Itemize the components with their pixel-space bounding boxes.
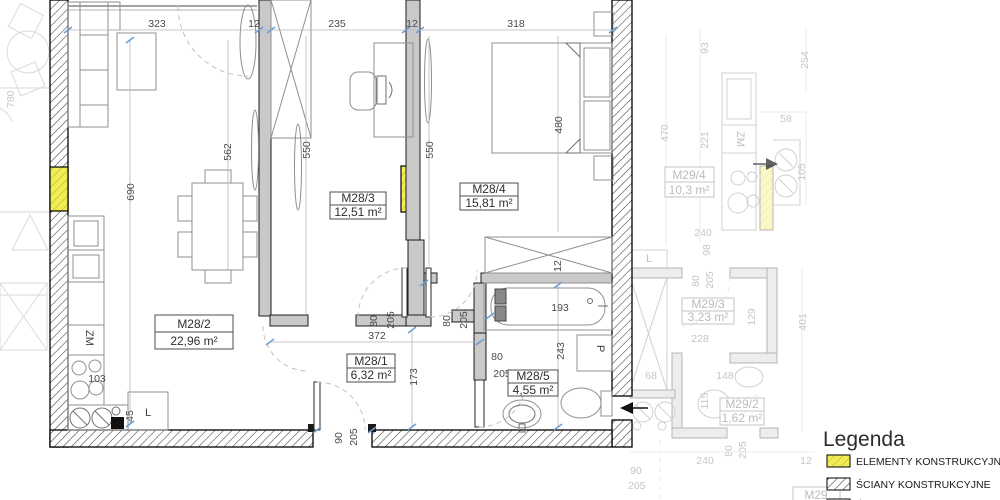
wall-right-upper xyxy=(612,0,632,396)
svg-text:205: 205 xyxy=(385,311,397,329)
legend-swatch-hatch xyxy=(827,478,850,490)
floor-plan-drawing: 780 470 93 221 254 58 105 xyxy=(0,0,1000,500)
room-label-m29-4: M29/4 10,3 m² xyxy=(665,167,714,197)
room-label-m28-2: M28/2 22,96 m² xyxy=(155,315,233,349)
door-leaf-room3 xyxy=(402,268,407,317)
svg-text:550: 550 xyxy=(424,141,436,159)
svg-text:205: 205 xyxy=(458,311,470,329)
svg-text:193: 193 xyxy=(551,302,569,314)
svg-text:ŚCIANY KONSTRUKCYJNE: ŚCIANY KONSTRUKCYJNE xyxy=(856,478,991,491)
legend-title: Legenda xyxy=(823,428,905,451)
svg-text:254: 254 xyxy=(799,51,811,69)
svg-text:103: 103 xyxy=(88,373,106,385)
door-leaf-entrance xyxy=(314,382,320,430)
svg-text:M28/5: M28/5 xyxy=(516,369,550,383)
partition-walls xyxy=(259,0,612,432)
pillow xyxy=(584,48,610,97)
bath-mixer xyxy=(495,289,506,304)
svg-text:M29/4: M29/4 xyxy=(672,168,706,182)
room-label-m28-1: M28/1 6,32 m² xyxy=(347,354,395,382)
svg-text:221: 221 xyxy=(699,131,711,149)
kitchen: ZM 103 45 L xyxy=(68,216,168,430)
tv-living xyxy=(252,110,259,190)
svg-text:550: 550 xyxy=(301,141,313,159)
legend: Legenda ELEMENTY KONSTRUKCYJNE ŚCIANY KO… xyxy=(823,428,1000,500)
wall-right-lower xyxy=(612,420,632,447)
toilet-tank xyxy=(601,391,612,416)
washing-machine-label: P xyxy=(594,345,606,352)
room-label-m29-2: M29/2 1,62 m² xyxy=(720,397,764,425)
svg-text:401: 401 xyxy=(797,313,809,331)
legend-item-structural-walls: ŚCIANY KONSTRUKCYJNE xyxy=(827,478,991,491)
wall-room3-hall xyxy=(408,240,424,317)
m29-sink xyxy=(735,367,763,387)
svg-text:M28/1: M28/1 xyxy=(354,354,388,368)
wall-hall-a xyxy=(270,315,308,326)
svg-text:240: 240 xyxy=(696,455,714,467)
wall-bath-top xyxy=(481,273,612,283)
room3-furniture xyxy=(271,0,413,210)
svg-text:562: 562 xyxy=(222,143,234,161)
fridge-label: L xyxy=(145,407,151,419)
door-leaf-room4 xyxy=(426,268,431,317)
chair xyxy=(178,196,192,221)
svg-text:243: 243 xyxy=(555,342,567,360)
room-label-m28-5: M28/5 4,55 m² xyxy=(508,369,558,397)
toilet-bowl xyxy=(561,388,601,418)
svg-text:80: 80 xyxy=(441,315,453,327)
chair xyxy=(205,270,231,283)
structural-element-yellow xyxy=(760,166,773,230)
svg-text:480: 480 xyxy=(553,116,565,134)
svg-text:22,96 m²: 22,96 m² xyxy=(170,334,217,348)
wall-left xyxy=(50,0,68,447)
window-top xyxy=(68,5,257,79)
svg-text:240: 240 xyxy=(694,227,712,239)
svg-text:1,62 m²: 1,62 m² xyxy=(722,411,763,425)
svg-text:ELEMENTY KONSTRUKCYJNE: ELEMENTY KONSTRUKCYJNE xyxy=(856,456,1000,468)
svg-text:80: 80 xyxy=(690,275,702,287)
svg-text:205: 205 xyxy=(628,480,646,492)
svg-text:4,55 m²: 4,55 m² xyxy=(513,383,554,397)
chair xyxy=(205,170,231,183)
m29-dishwasher-label: ZM xyxy=(734,131,746,147)
svg-text:12: 12 xyxy=(800,455,812,467)
legend-swatch-yellow xyxy=(827,455,850,467)
svg-text:12: 12 xyxy=(552,260,564,272)
room-label-m28-3: M28/3 12,51 m² xyxy=(330,191,386,219)
svg-text:3,23 m²: 3,23 m² xyxy=(688,310,729,324)
balcony: 780 xyxy=(0,3,50,350)
desk-chair xyxy=(350,72,376,110)
wall-bottom-right xyxy=(372,430,612,447)
washing-machine xyxy=(577,335,612,371)
nightstand xyxy=(594,156,613,180)
dim-top: 318 xyxy=(507,18,525,30)
chair xyxy=(243,196,257,221)
svg-text:205: 205 xyxy=(737,441,749,459)
sofa xyxy=(68,2,108,127)
bathtub-inner xyxy=(491,288,605,325)
bed xyxy=(492,43,612,153)
door-leaf-bath xyxy=(475,380,484,427)
room4-furniture xyxy=(425,12,614,273)
svg-text:205: 205 xyxy=(704,271,716,289)
keyboard xyxy=(389,82,392,98)
wall-bath-left-lower xyxy=(474,333,486,380)
pillow xyxy=(584,101,610,150)
doors xyxy=(263,268,526,430)
room-label-m29-3: M29/3 3,23 m² xyxy=(682,297,734,324)
svg-text:80: 80 xyxy=(491,351,503,363)
kitchen-dark-unit xyxy=(111,417,124,429)
svg-text:M29/2: M29/2 xyxy=(725,397,759,411)
m29-rooms: L 80 205 129 228 401 M29/3 3,23 xyxy=(628,250,840,500)
legend-item-structural-elements: ELEMENTY KONSTRUKCYJNE xyxy=(827,455,1000,468)
living-room-furniture xyxy=(68,2,259,283)
structural-element-yellow xyxy=(50,167,68,211)
svg-text:M29/3: M29/3 xyxy=(691,297,725,311)
svg-text:228: 228 xyxy=(691,333,709,345)
svg-text:15,81 m²: 15,81 m² xyxy=(465,196,512,210)
bath-mixer xyxy=(495,306,506,321)
svg-text:105: 105 xyxy=(796,163,808,181)
balcony-door-leaf xyxy=(240,5,256,79)
svg-text:10,3 m²: 10,3 m² xyxy=(669,183,710,197)
room-label-m28-4: M28/4 15,81 m² xyxy=(460,182,518,210)
wall-hall-b xyxy=(356,315,406,326)
tv-room3 xyxy=(295,124,302,210)
svg-text:93: 93 xyxy=(699,42,711,54)
chair xyxy=(243,232,257,257)
svg-text:690: 690 xyxy=(125,183,137,201)
svg-text:M29: M29 xyxy=(804,488,828,500)
tv-room4 xyxy=(425,39,432,123)
bathtub-drain xyxy=(588,299,593,304)
tree-symbol xyxy=(12,215,48,250)
dim-top: 235 xyxy=(328,18,346,30)
floor-plan-page: 780 470 93 221 254 58 105 xyxy=(0,0,1000,500)
m28-plan: ZM 103 45 L xyxy=(50,0,778,447)
m29-fridge-label: L xyxy=(646,253,652,265)
svg-text:68: 68 xyxy=(645,370,657,382)
svg-text:80: 80 xyxy=(368,315,380,327)
wall-living-room3 xyxy=(259,0,271,316)
svg-text:470: 470 xyxy=(659,124,671,142)
svg-text:372: 372 xyxy=(368,330,386,342)
svg-text:58: 58 xyxy=(780,113,792,125)
svg-text:115: 115 xyxy=(699,392,711,409)
svg-text:M28/3: M28/3 xyxy=(341,191,375,205)
dim-balcony: 780 xyxy=(5,90,17,108)
wall-bottom-left xyxy=(50,430,313,447)
svg-text:98: 98 xyxy=(701,244,713,256)
svg-text:90: 90 xyxy=(333,432,345,444)
svg-text:205: 205 xyxy=(348,428,360,446)
neighbor-window xyxy=(0,283,47,350)
dishwasher-label: ZM xyxy=(83,330,95,346)
svg-text:90: 90 xyxy=(630,465,642,477)
svg-text:173: 173 xyxy=(408,368,420,386)
svg-text:129: 129 xyxy=(746,308,758,326)
monitor xyxy=(377,76,386,104)
bathroom-fixtures: P xyxy=(484,283,612,432)
svg-text:6,32 m²: 6,32 m² xyxy=(351,368,392,382)
svg-text:M28/4: M28/4 xyxy=(472,182,506,196)
entrance-arrow xyxy=(620,402,633,414)
dim-top: 323 xyxy=(148,18,166,30)
chair xyxy=(178,232,192,257)
m29-kitchen: 470 93 221 254 58 105 ZM 240 98 xyxy=(659,28,811,256)
svg-text:M28/2: M28/2 xyxy=(177,317,211,331)
dim-top: 12 xyxy=(406,18,418,30)
svg-text:12,51 m²: 12,51 m² xyxy=(334,205,381,219)
svg-text:148: 148 xyxy=(716,370,734,382)
dim-top: 12 xyxy=(248,18,260,30)
kitchen-unit xyxy=(68,282,104,325)
svg-text:80: 80 xyxy=(723,445,735,457)
coffee-table xyxy=(117,33,156,90)
dining-table xyxy=(192,183,243,270)
